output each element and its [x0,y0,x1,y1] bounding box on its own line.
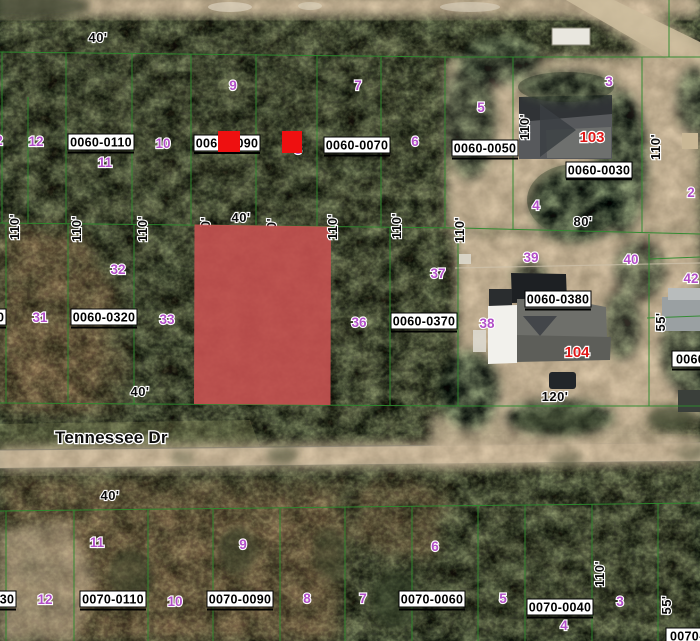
svg-text:12: 12 [28,134,43,149]
svg-text:0060-03: 0060-03 [676,353,700,367]
svg-text:10: 10 [167,594,182,609]
svg-text:110': 110' [648,134,663,160]
svg-text:39: 39 [523,250,538,265]
svg-text:0060-0070: 0060-0070 [326,139,388,153]
svg-text:110': 110' [517,114,532,140]
svg-text:55': 55' [659,595,674,614]
svg-text:0060-0110: 0060-0110 [70,136,132,150]
svg-text:0060-0380: 0060-0380 [527,293,589,307]
svg-text:36: 36 [351,315,367,330]
svg-text:110': 110' [325,214,340,240]
svg-text:40': 40' [130,384,149,399]
svg-text:32: 32 [110,262,125,277]
svg-text:33: 33 [159,312,175,327]
svg-text:2: 2 [687,185,695,200]
svg-text:Tennessee Dr: Tennessee Dr [55,428,168,447]
svg-text:6: 6 [431,539,439,554]
svg-text:11: 11 [90,535,105,550]
svg-text:0060-0330: 0060-0330 [0,311,4,325]
svg-text:0060-0320: 0060-0320 [73,311,135,325]
svg-text:3: 3 [616,594,624,609]
svg-text:0060-0050: 0060-0050 [454,142,516,156]
svg-text:7: 7 [359,591,367,606]
svg-text:103: 103 [579,129,604,146]
svg-text:7: 7 [354,78,362,93]
svg-text:0070-0040: 0070-0040 [529,601,591,615]
svg-text:8: 8 [303,591,311,606]
svg-text:0060-0370: 0060-0370 [393,315,455,329]
svg-text:80': 80' [573,214,592,229]
svg-text:40: 40 [623,252,638,267]
svg-text:5: 5 [499,591,507,606]
svg-text:10: 10 [155,136,170,151]
svg-text:0070-0090: 0070-0090 [209,593,271,607]
svg-text:38: 38 [479,316,495,331]
svg-text:42: 42 [683,271,698,286]
svg-text:9: 9 [229,78,237,93]
svg-text:0070-00: 0070-00 [670,630,700,641]
svg-text:12: 12 [37,592,52,607]
svg-text:110': 110' [592,561,607,587]
svg-text:6: 6 [411,134,419,149]
svg-text:11: 11 [98,155,113,170]
svg-text:40': 40' [100,488,119,503]
svg-text:55': 55' [653,312,668,331]
svg-text:9: 9 [239,537,247,552]
svg-text:110': 110' [135,216,150,242]
svg-text:110': 110' [69,216,84,242]
svg-text:0070-0130: 0070-0130 [0,593,14,607]
svg-text:4: 4 [532,198,540,213]
svg-text:4: 4 [560,618,568,633]
svg-text:0070-0060: 0070-0060 [401,593,463,607]
svg-text:110': 110' [389,213,404,239]
svg-text:40': 40' [88,30,107,45]
svg-text:104: 104 [564,344,590,361]
svg-text:120': 120' [542,389,569,404]
svg-text:40': 40' [231,210,250,225]
svg-text:2: 2 [0,133,3,148]
svg-text:0070-0110: 0070-0110 [82,593,144,607]
svg-text:0060-0030: 0060-0030 [568,164,630,178]
svg-text:3: 3 [605,74,613,89]
svg-text:37: 37 [430,266,445,281]
svg-text:31: 31 [32,310,48,325]
svg-text:110': 110' [452,217,467,243]
svg-text:110': 110' [7,214,22,240]
svg-text:5: 5 [477,100,485,115]
